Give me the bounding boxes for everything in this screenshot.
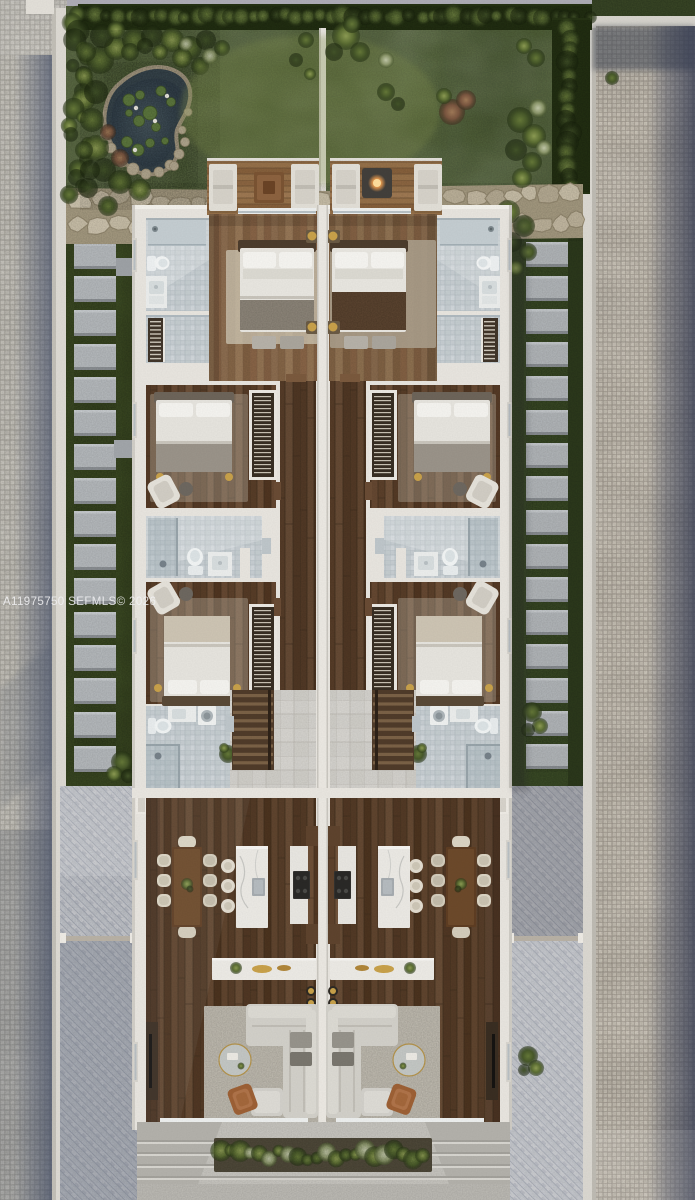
svg-text:A11975750 SEFMLS© 2026: A11975750 SEFMLS© 2026 (3, 596, 156, 608)
